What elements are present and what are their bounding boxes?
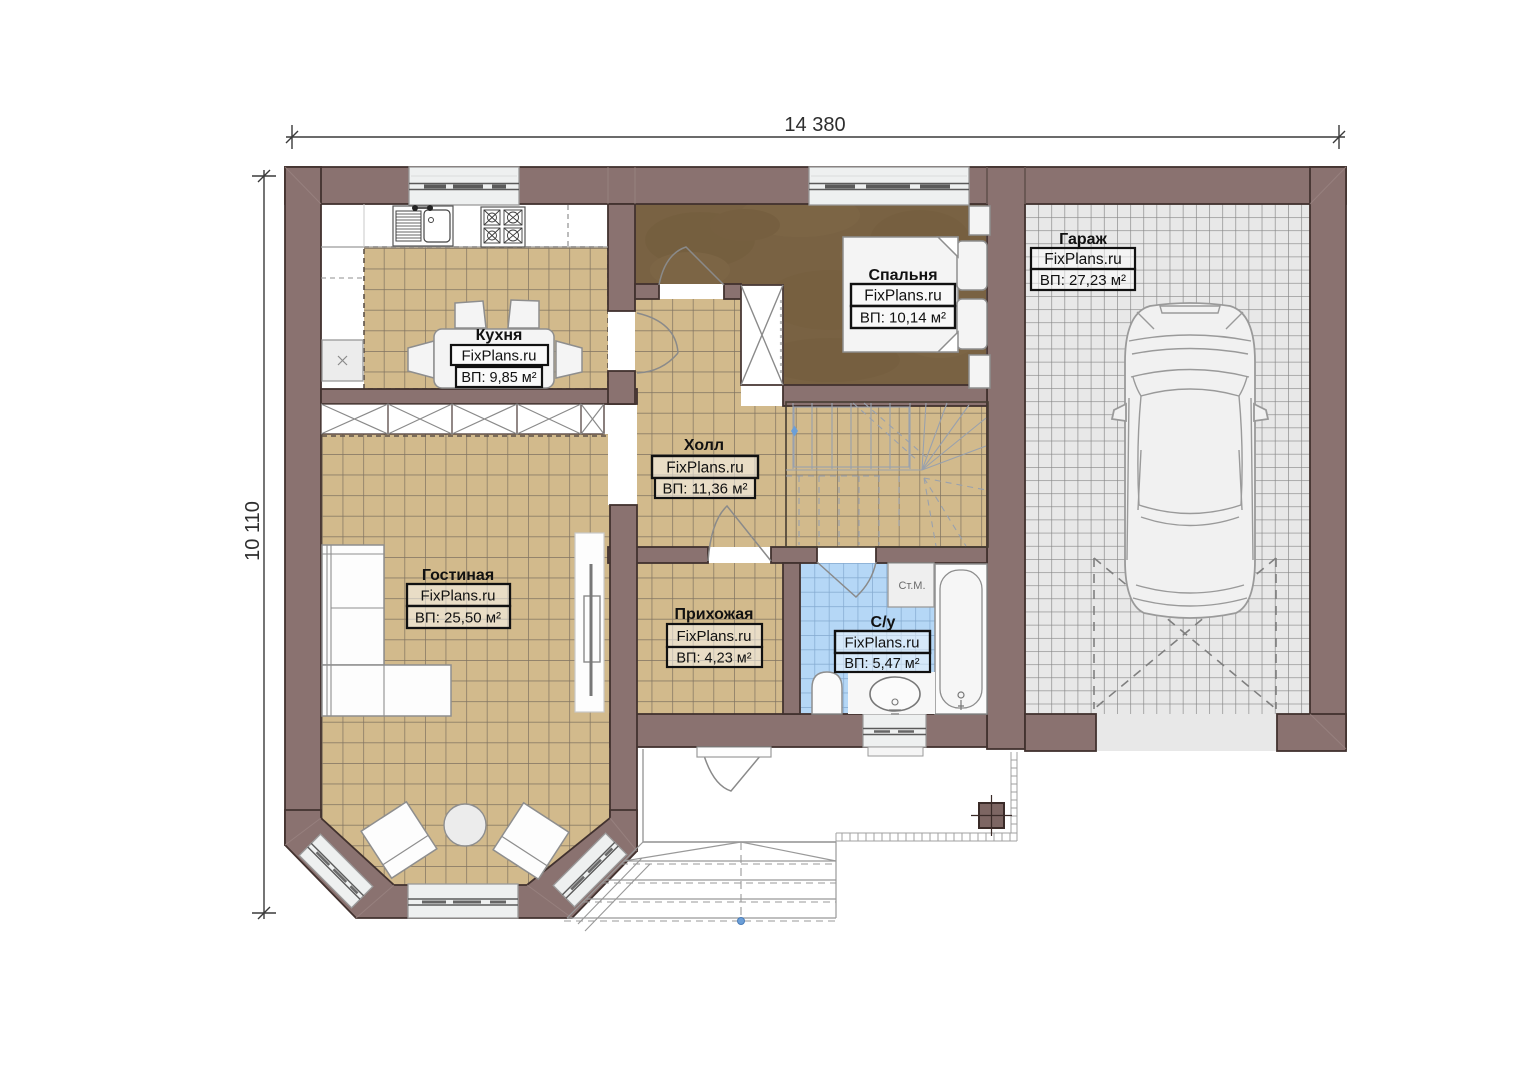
svg-text:Спальня: Спальня xyxy=(868,267,937,284)
svg-text:FixPlans.ru: FixPlans.ru xyxy=(666,460,744,477)
svg-text:ВП: 25,50 м²: ВП: 25,50 м² xyxy=(415,610,501,627)
svg-text:FixPlans.ru: FixPlans.ru xyxy=(676,628,751,645)
svg-text:FixPlans.ru: FixPlans.ru xyxy=(844,635,919,652)
svg-text:ВП: 5,47 м²: ВП: 5,47 м² xyxy=(844,656,919,672)
svg-text:Ст.М.: Ст.М. xyxy=(898,580,925,592)
svg-text:FixPlans.ru: FixPlans.ru xyxy=(461,348,536,365)
svg-text:Гараж: Гараж xyxy=(1059,231,1107,248)
svg-text:ВП: 4,23 м²: ВП: 4,23 м² xyxy=(676,651,751,667)
svg-text:10 110: 10 110 xyxy=(242,501,264,561)
svg-text:Кухня: Кухня xyxy=(476,327,523,344)
svg-text:ВП: 27,23 м²: ВП: 27,23 м² xyxy=(1040,272,1126,289)
svg-text:FixPlans.ru: FixPlans.ru xyxy=(864,288,942,305)
svg-text:FixPlans.ru: FixPlans.ru xyxy=(420,588,495,605)
svg-text:ВП: 10,14 м²: ВП: 10,14 м² xyxy=(860,310,946,327)
svg-text:ВП: 11,36 м²: ВП: 11,36 м² xyxy=(662,481,747,498)
svg-text:Гостиная: Гостиная xyxy=(422,567,494,584)
svg-text:С/у: С/у xyxy=(871,614,896,631)
svg-text:14 380: 14 380 xyxy=(784,114,845,136)
svg-text:ВП: 9,85 м²: ВП: 9,85 м² xyxy=(461,370,536,386)
svg-text:Прихожая: Прихожая xyxy=(675,606,754,623)
svg-text:Холл: Холл xyxy=(684,437,724,454)
svg-text:FixPlans.ru: FixPlans.ru xyxy=(1044,251,1122,268)
